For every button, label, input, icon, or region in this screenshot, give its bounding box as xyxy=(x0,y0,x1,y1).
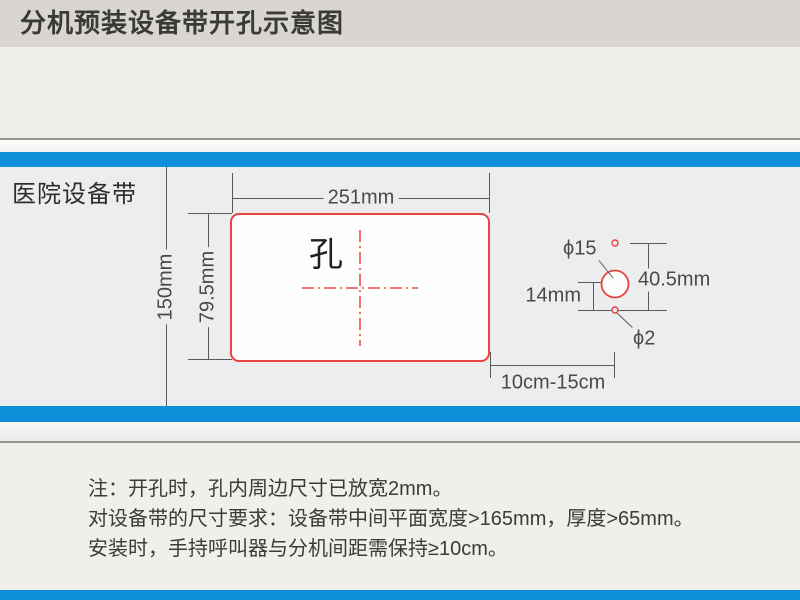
dim-rect-width-tick-right xyxy=(489,173,490,213)
page: 分机预装设备带开孔示意图 医院设备带 孔 251mm xyxy=(0,0,800,600)
dim-hole-gap-label: 40.5mm xyxy=(634,269,714,292)
band-label: 医院设备带 xyxy=(12,174,137,209)
dim-rect-height-label: 79.5mm xyxy=(197,247,220,327)
dim-band-height-label: 150mm xyxy=(155,250,178,325)
dim-hole-offset-label: 14mm xyxy=(521,285,585,308)
dim-install-distance-tick-left xyxy=(490,352,491,378)
small-hole-bottom-circle xyxy=(612,307,618,313)
dim-rect-height-tick-bottom xyxy=(188,359,232,360)
band-bottom-white-strip xyxy=(0,422,800,441)
band-top-white-strip xyxy=(0,140,800,152)
band-bottom-blue-stripe xyxy=(0,406,800,422)
big-hole-dia-label: ϕ15 xyxy=(559,238,600,261)
big-hole-circle xyxy=(602,271,629,298)
dim-rect-height-tick-top xyxy=(188,213,232,214)
dim-rect-width-label: 251mm xyxy=(324,187,399,210)
note-line-1: 注：开孔时，孔内周边尺寸已放宽2mm。 xyxy=(88,474,694,504)
notes-block: 注：开孔时，孔内周边尺寸已放宽2mm。 对设备带的尺寸要求：设备带中间平面宽度>… xyxy=(88,474,694,564)
band-top-blue-stripe xyxy=(0,152,800,167)
page-title: 分机预装设备带开孔示意图 xyxy=(0,0,800,47)
small-hole-dia-label: ϕ2 xyxy=(629,328,659,351)
note-line-2: 对设备带的尺寸要求：设备带中间平面宽度>165mm，厚度>65mm。 xyxy=(88,504,694,534)
title-bar: 分机预装设备带开孔示意图 xyxy=(0,0,800,47)
note-line-3: 安装时，手持呼叫器与分机间距需保持≥10cm。 xyxy=(88,534,694,564)
dim-rect-width-tick-left xyxy=(232,173,233,213)
dim-install-distance-label: 10cm-15cm xyxy=(497,372,609,395)
small-hole-top-circle xyxy=(612,240,618,246)
dim-install-distance-tick-right xyxy=(614,352,615,378)
hole-detail-overlay xyxy=(290,225,680,355)
dim-install-distance-line xyxy=(490,365,615,366)
bottom-accent-bar xyxy=(0,590,800,600)
